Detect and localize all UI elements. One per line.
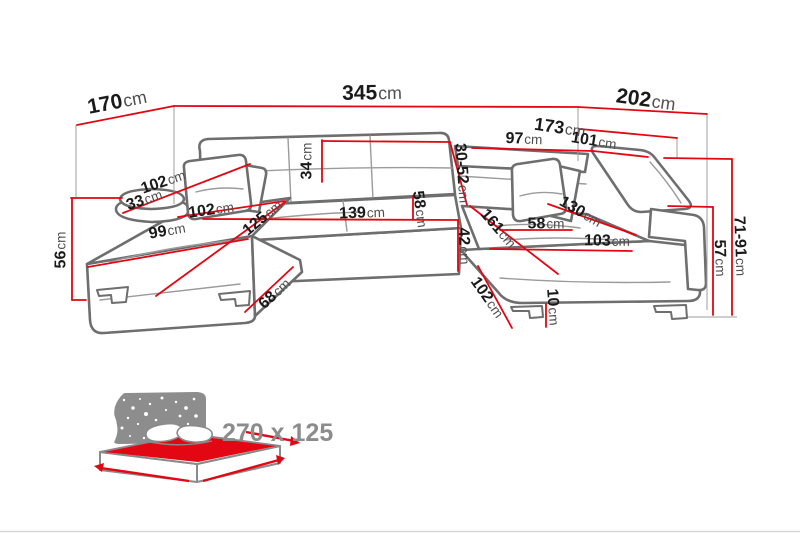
- dim-139: 139cm: [339, 204, 385, 223]
- dim-97: 97cm: [505, 130, 542, 148]
- dimension-line: [668, 206, 713, 207]
- dim-103: 103cm: [584, 232, 630, 250]
- right-front-cushion: [512, 159, 566, 221]
- diagram-canvas: 170cm 345cm 202cm 173cm 97cm 101cm 102cm…: [0, 0, 800, 533]
- dimension-line: [664, 158, 732, 159]
- dimension-line: [174, 106, 578, 107]
- dim-170: 170cm: [86, 85, 149, 119]
- dim-58-seat: 58cm: [528, 216, 565, 233]
- dim-34: 34cm: [299, 143, 316, 180]
- dim-71-91: 71-91cm: [730, 216, 749, 277]
- bed-pillow-right: [177, 426, 212, 442]
- dim-345: 345cm: [342, 81, 402, 105]
- dimension-line: [322, 141, 450, 142]
- dim-42: 42cm: [454, 227, 473, 265]
- dim-202: 202cm: [615, 84, 677, 115]
- footprint-label: 270 x 125: [222, 419, 333, 447]
- dim-56: 56cm: [53, 232, 70, 269]
- dim-57: 57cm: [711, 239, 729, 276]
- sleeping-area-icon: 270 x 125: [94, 392, 333, 482]
- sofa-dimension-diagram: 170cm 345cm 202cm 173cm 97cm 101cm 102cm…: [0, 0, 800, 533]
